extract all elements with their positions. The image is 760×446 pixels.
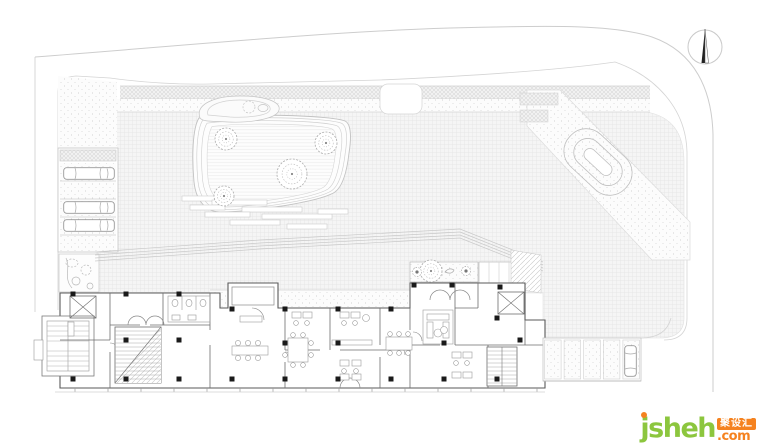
core-stair-left [115, 327, 161, 383]
column [389, 307, 394, 312]
column [389, 377, 394, 382]
logo-tld-text: .com [717, 430, 750, 443]
column [71, 377, 76, 382]
column [177, 338, 182, 343]
parked-car [64, 168, 115, 180]
column [495, 377, 500, 382]
tree-symbol [215, 128, 237, 150]
shrub-symbol [462, 267, 471, 276]
parking-stall [584, 340, 601, 379]
column [283, 377, 288, 382]
parked-car [64, 220, 115, 232]
column [450, 283, 455, 288]
column [177, 377, 182, 382]
column [230, 307, 235, 312]
parking-stall [603, 340, 620, 379]
left-plant-bed [59, 254, 99, 292]
column [442, 377, 447, 382]
facade-ticks [55, 388, 545, 392]
column [336, 341, 341, 346]
jsheh-logo[interactable]: jsheh 聚设汇 .com [640, 408, 756, 444]
tree-symbol [315, 132, 337, 154]
column [124, 377, 129, 382]
shrub-symbol [413, 268, 422, 277]
column [230, 377, 235, 382]
left-parking [58, 148, 118, 252]
parked-car [64, 202, 115, 214]
column [124, 338, 129, 343]
tree-symbol [420, 260, 442, 282]
core-stair-right [487, 347, 517, 386]
parked-car [625, 346, 637, 377]
column [283, 341, 288, 346]
right-parking [543, 338, 641, 381]
external-stair [34, 316, 94, 376]
tree-symbol [277, 159, 307, 189]
site-plan-drawing [0, 0, 760, 446]
planting-strip-hatch [60, 150, 116, 161]
parking-stall [564, 340, 581, 379]
road-notch [380, 84, 422, 114]
tree-symbol [214, 186, 234, 206]
column [283, 307, 288, 312]
column [495, 316, 500, 321]
column [71, 292, 76, 297]
apron-stipple [58, 76, 117, 150]
north-arrow-icon [688, 29, 722, 64]
site-plan-page: jsheh 聚设汇 .com [0, 0, 760, 446]
column [177, 292, 182, 297]
column [336, 307, 341, 312]
column [498, 285, 503, 290]
column [336, 377, 341, 382]
logo-brand-text: jsheh [640, 414, 715, 444]
parking-stall [545, 340, 562, 379]
column [518, 338, 523, 343]
column [442, 341, 447, 346]
column [124, 292, 129, 297]
column [412, 283, 417, 288]
